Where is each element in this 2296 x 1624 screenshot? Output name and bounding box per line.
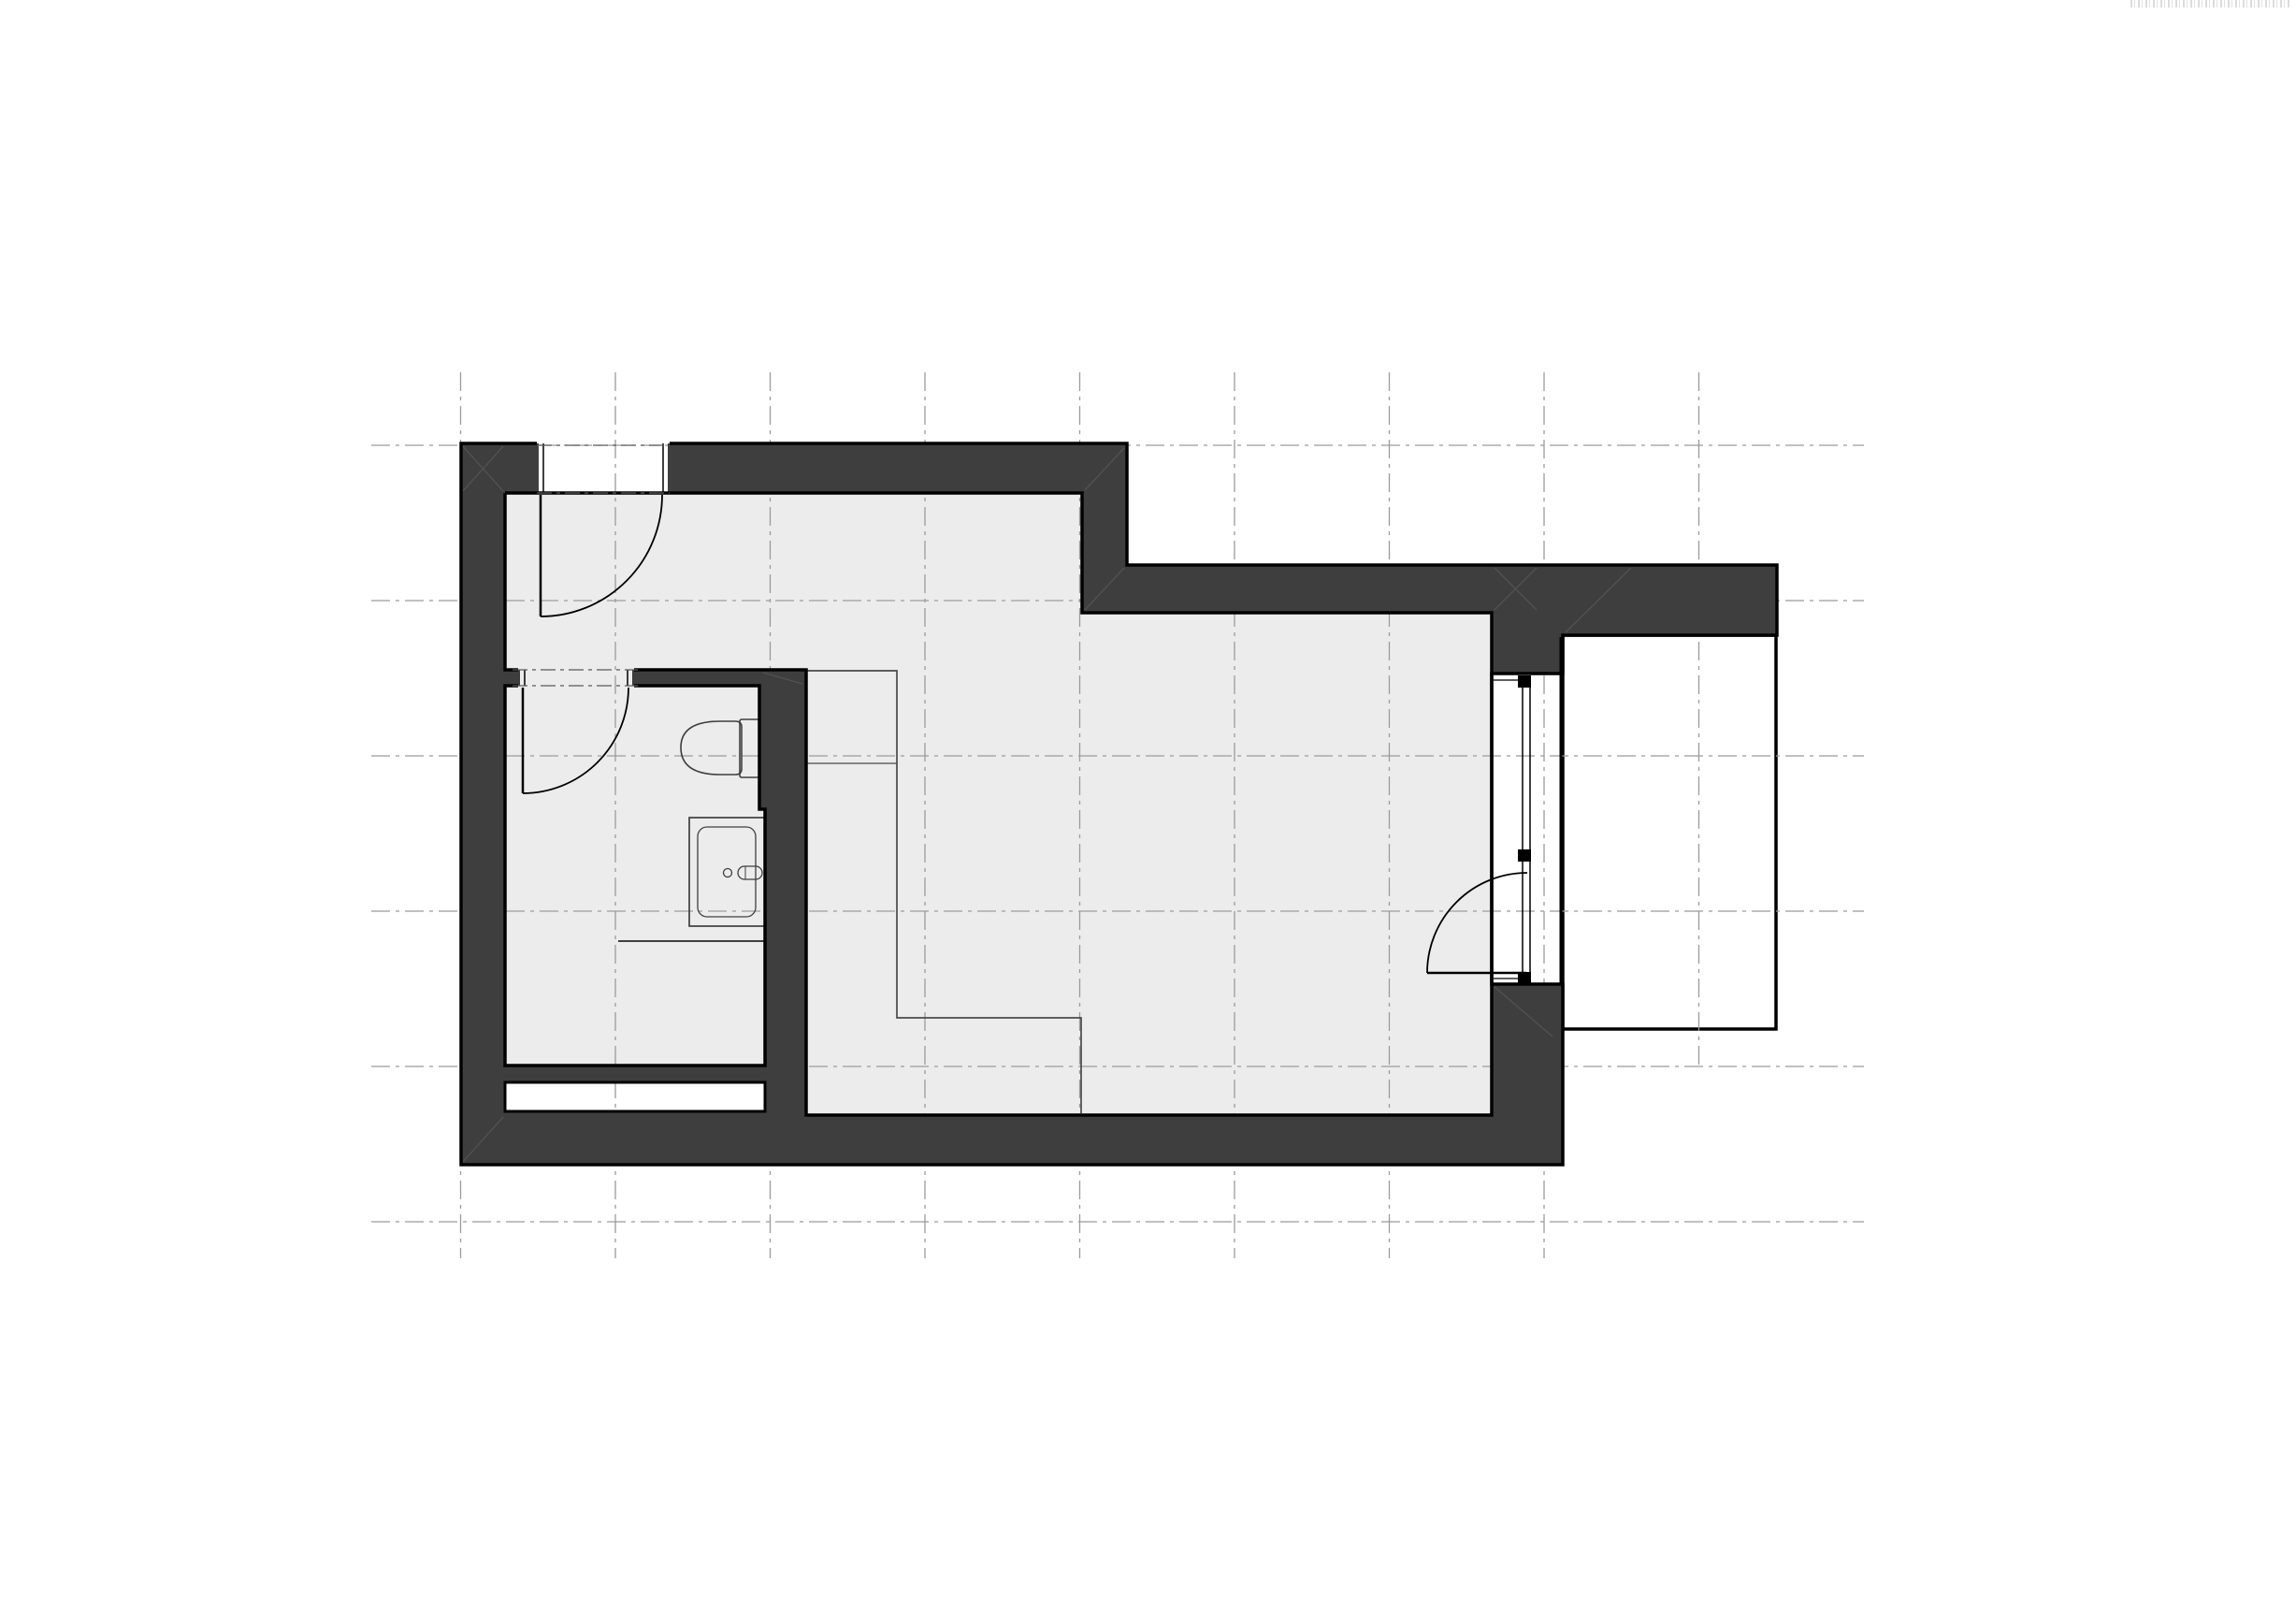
floor-plan-page xyxy=(0,0,2296,1624)
window-frame-block xyxy=(1518,675,1531,688)
bathroom-door-threshold xyxy=(517,668,635,688)
floor-plan-svg xyxy=(0,0,2296,1624)
window-frame-block xyxy=(1518,849,1531,862)
watermark-text xyxy=(2130,0,2289,7)
window-frame-block xyxy=(1518,972,1531,984)
balcony-floor xyxy=(1563,635,1776,1029)
bathroom-floor xyxy=(505,686,765,1066)
duct-shaft-outline xyxy=(505,1082,765,1111)
